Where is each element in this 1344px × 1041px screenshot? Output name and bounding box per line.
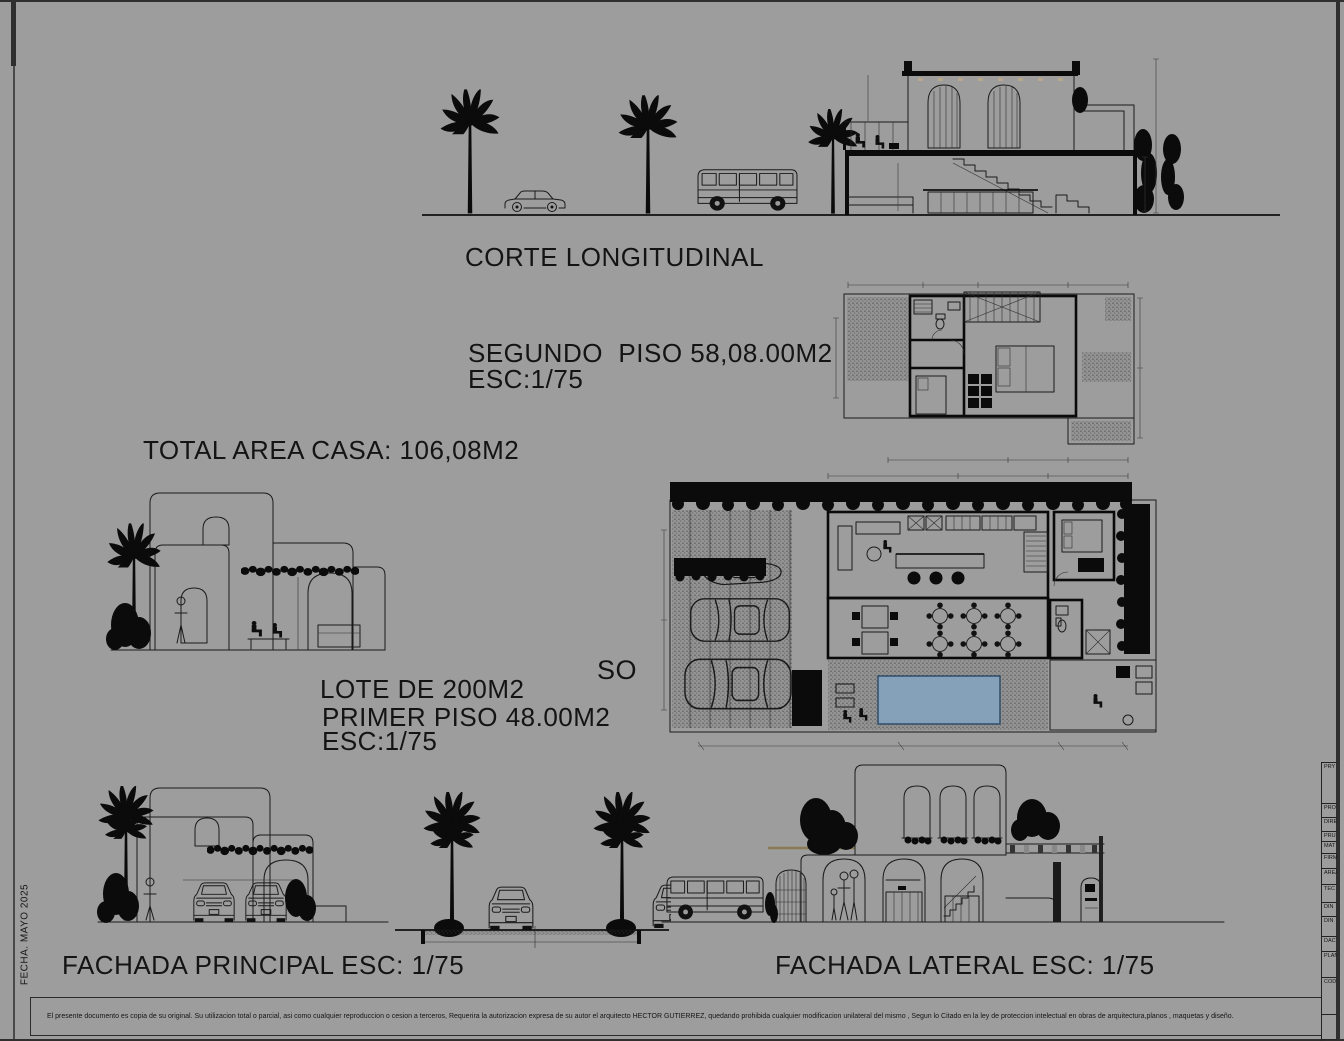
disclaimer-text: El presente documento es copia de su ori…: [31, 1013, 1234, 1020]
titleblock-row: DIN: [1322, 902, 1337, 916]
sheet-border-top: [0, 0, 1344, 2]
small-bedroom: [916, 376, 946, 414]
titleblock: PRY PRO DIRE PRU MAT FIRM AREA TEC DIN D…: [1321, 762, 1337, 1041]
stair: [953, 159, 1089, 213]
lower-wall-arches: [801, 855, 1006, 922]
titleblock-row: PRO: [1322, 803, 1337, 817]
rear-roof-terrace: [1078, 105, 1134, 150]
bathroom-fixtures: [914, 300, 964, 354]
titleblock-row: PLAN: [1322, 951, 1337, 977]
titleblock-row: DAC: [1322, 936, 1337, 951]
van: [698, 170, 797, 211]
bedroom-furniture: [968, 346, 1054, 408]
clerestory-vents: [918, 78, 1063, 81]
total-area-label: TOTAL AREA CASA: 106,08M2: [143, 437, 519, 463]
titleblock-row: DIN: [1322, 916, 1337, 937]
fachada-lateral-drawing: [658, 758, 1233, 958]
corte-longitudinal-drawing: [408, 45, 1288, 245]
partial-heading: SO: [597, 657, 637, 684]
sedan-car: [505, 191, 565, 212]
primer-piso-plan: [658, 470, 1168, 760]
dining-room: [852, 602, 1022, 657]
kitchen: [896, 516, 1036, 585]
vine-band: [241, 566, 360, 576]
building-section: [843, 59, 1184, 215]
side-room: [1081, 878, 1101, 921]
hatched-terraces: [847, 297, 1131, 441]
palm-tree: [423, 789, 480, 934]
car-front: [194, 883, 234, 922]
titleblock-row: PRU: [1322, 831, 1337, 842]
seated-people: [248, 621, 360, 649]
lote-label: LOTE DE 200M2: [320, 676, 524, 702]
titleblock-row: TEC: [1322, 884, 1337, 902]
bush: [106, 603, 151, 650]
arched-window: [928, 85, 1020, 148]
gate: [765, 870, 806, 923]
sheet-border-left: [13, 0, 15, 1041]
palm-tree: [441, 86, 858, 213]
date-vertical-label: FECHA. MAYO 2025: [20, 880, 31, 990]
titleblock-row: DIRE: [1322, 817, 1337, 831]
parking-area: [672, 510, 792, 728]
bedroom: [1054, 520, 1104, 586]
titleblock-row: PRY: [1322, 762, 1337, 803]
segundo-piso-plan: [828, 278, 1168, 473]
van: [667, 877, 763, 920]
pool: [878, 676, 1000, 724]
street-section-drawing: [393, 778, 671, 960]
interior-stair: [1024, 532, 1048, 572]
vine-band: [207, 845, 314, 855]
segundo-piso-title: SEGUNDO PISO 58,08.00M2: [468, 340, 833, 366]
patio: [1050, 660, 1156, 730]
fachada-lateral-title: FACHADA LATERAL ESC: 1/75: [775, 952, 1155, 978]
kitchen-island: [896, 554, 984, 568]
titleblock-row: FIRM: [1322, 853, 1337, 868]
segundo-piso-scale: ESC:1/75: [468, 366, 583, 392]
palm-tree: [593, 789, 650, 934]
titleblock-row: COD: [1322, 977, 1337, 1013]
titleblock-row: AREA: [1322, 868, 1337, 885]
stairwell: [964, 292, 1040, 322]
car-front: [246, 883, 286, 922]
living-room: [838, 522, 900, 570]
kitchen-counter: [848, 190, 1038, 213]
fachada-principal-drawing: [88, 758, 398, 950]
family-figures: [831, 870, 858, 920]
disclaimer-box: El presente documento es copia de su ori…: [30, 997, 1322, 1036]
titleblock-row: [1322, 1014, 1337, 1039]
fachada-principal-title: FACHADA PRINCIPAL ESC: 1/75: [62, 952, 464, 978]
elevation-sketch: [103, 473, 393, 673]
walls: [910, 296, 1076, 416]
roof-terrace: [1006, 836, 1104, 922]
sheet-border-left-thick: [11, 0, 16, 66]
road: [395, 926, 669, 948]
drawing-sheet: CORTE LONGITUDINAL SEGUNDO PISO 58,08.00…: [0, 0, 1344, 1041]
primer-piso-scale: ESC:1/75: [322, 728, 437, 754]
corte-title: CORTE LONGITUDINAL: [465, 244, 764, 270]
titleblock-row: MAT: [1322, 841, 1337, 853]
upper-volume: [855, 765, 1006, 855]
car-front: [489, 887, 533, 930]
